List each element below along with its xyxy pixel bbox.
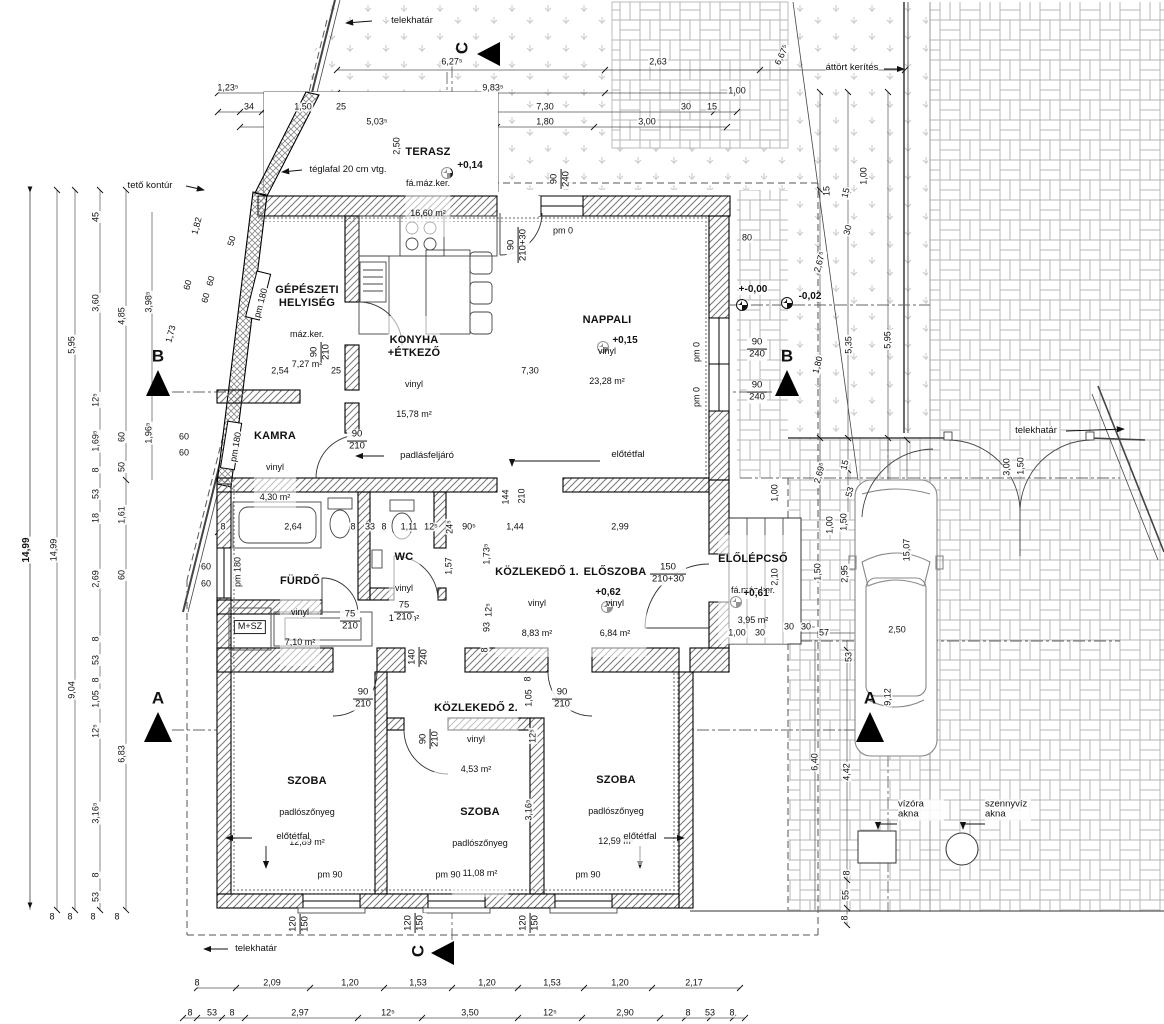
dimension-label: 18 (92, 512, 101, 524)
opening-size-tag: 90210+30 (507, 227, 530, 263)
dimension-label: 5,35 (845, 335, 854, 355)
dimension-label: 8 (193, 979, 200, 988)
dimension-label: 8 (66, 913, 73, 922)
dimension-label: 2,50 (887, 626, 907, 635)
dimension-label: 8 (349, 523, 356, 532)
dimension-label: 8 (92, 466, 101, 473)
opening-size-tag: 120150 (404, 913, 427, 933)
dimension-label: 1,20 (610, 979, 630, 988)
opening-size-tag: 140240 (408, 647, 431, 667)
section-marker-b-right: B (781, 348, 793, 365)
dimension-label: 8 (89, 913, 96, 922)
dimension-label: 12⁵ (92, 723, 101, 739)
dimension-label: 1,96⁵ (145, 421, 154, 444)
room-label-szoba-3: SZOBA padlószőnyeg 12,59 m² (588, 756, 644, 865)
dimension-label: 93 (483, 621, 492, 633)
dimension-label: 6,27⁵ (440, 58, 463, 67)
dimension-label: 1,73⁵ (483, 542, 492, 565)
dimension-label: 3,16⁵ (92, 801, 101, 824)
dimension-label: 1,50 (814, 562, 823, 582)
level-label: -0,02 (799, 292, 822, 302)
dimension-label: 8 (92, 635, 101, 642)
dimension-label: 8 (228, 1009, 235, 1018)
opening-size-tag: 90210 (353, 688, 373, 711)
dimension-label: 5,95 (884, 330, 893, 350)
dimension-label: 12⁵ (485, 602, 494, 618)
dimension-label: pm 0 (552, 227, 574, 236)
dimension-label: 90⁵ (461, 523, 477, 532)
dimension-label: 60 (200, 563, 212, 572)
note-teto-kontur: tető kontúr (128, 181, 173, 191)
dimension-label: 1,44 (505, 523, 525, 532)
opening-size-tag: 90240 (747, 338, 767, 361)
dimension-label: 1,05 (92, 689, 101, 709)
dimension-label: 2,97 (290, 1009, 310, 1018)
dimension-label: 8 (728, 1009, 735, 1018)
dimension-label: 15 (823, 185, 832, 197)
dimension-label: 1,20 (340, 979, 360, 988)
dimension-label: 60 (118, 431, 127, 443)
dimension-label: 1,00 (727, 87, 747, 96)
level-label: +0,14 (457, 161, 482, 171)
dimension-label: 2,50 (393, 136, 402, 156)
dimension-label: 53 (92, 654, 101, 666)
room-label-konyha: KONYHA +ÉTKEZŐ vinyl 15,78 m² (388, 316, 440, 438)
car (849, 480, 943, 756)
dimension-label: pm 90 (434, 871, 461, 880)
dimension-label: 7,30 (520, 367, 540, 376)
dimension-label: 34 (243, 103, 255, 112)
dimension-label: 53 (92, 891, 101, 903)
note-elotetfal-3: előtétfal (611, 450, 644, 460)
dimension-label: 1,00 (826, 515, 835, 535)
dimension-label: 4,42 (843, 762, 852, 782)
dimension-label: 50 (118, 461, 127, 473)
dimension-label: 80 (741, 234, 753, 243)
dimension-label: 1,61 (118, 505, 127, 525)
dimension-label: 3,16⁵ (525, 798, 534, 821)
dimension-label: 60 (200, 580, 212, 589)
dimension-label: 9,12 (884, 687, 893, 707)
dimension-label: 1,00 (727, 629, 747, 638)
room-label-kamra: KAMRA vinyl 4,30 m² (254, 412, 296, 521)
room-label-wc: WC vinyl 1,74 m² (389, 533, 420, 642)
dimension-label: 2,64 (283, 523, 303, 532)
dimension-label: 8 (219, 523, 226, 532)
dimension-label: 12⁵ (423, 523, 439, 532)
dimension-label: 3,98⁵ (145, 290, 154, 313)
dimension-label: 1,50 (1017, 456, 1026, 476)
dimension-label: 2,09 (262, 979, 282, 988)
note-attort-kerites: áttört kerítés (826, 63, 879, 73)
room-label-terasz: TERASZ fá.máz.ker. 16,60 m² (405, 128, 450, 237)
dimension-label: 14,99 (22, 536, 32, 563)
section-marker-b-left: B (152, 348, 164, 365)
section-marker-c-bottom: C (410, 945, 427, 957)
section-marker-c-top: C (454, 42, 471, 54)
dimension-label: 1,53 (408, 979, 428, 988)
dimension-label: 60 (178, 433, 190, 442)
dimension-label: 3,00 (637, 118, 657, 127)
dimension-label: 15 (706, 103, 718, 112)
note-telekhatar-top: telekhatár (391, 16, 433, 26)
dimension-label: 8 (843, 869, 852, 876)
opening-size-tag: 75210 (340, 610, 360, 633)
dimension-label: 1,11 (400, 523, 419, 532)
dimension-label: 2,54 (270, 367, 290, 376)
dimension-label: 55 (842, 889, 851, 901)
section-marker-a-left: A (152, 690, 164, 707)
dimension-label: pm 90 (316, 871, 343, 880)
opening-size-tag: 90210 (419, 729, 442, 749)
dimension-label: pm 90 (574, 871, 601, 880)
dimension-label: 14,99 (50, 538, 59, 563)
dimension-label: 8 (92, 871, 101, 878)
opening-size-tag: 90240 (550, 169, 573, 189)
dimension-label: 1,23⁵ (216, 84, 239, 93)
floor-plan-page: TERASZ fá.máz.ker. 16,60 m² GÉPÉSZETI HE… (0, 0, 1164, 1024)
dimension-label: 30 (680, 103, 692, 112)
opening-size-tag: 90240 (747, 381, 767, 404)
dimension-label: 8 (481, 646, 490, 653)
dimension-label: 2,90 (615, 1009, 635, 1018)
opening-size-tag: 120150 (519, 913, 542, 933)
note-teglafal: téglafal 20 cm vtg. (309, 165, 386, 175)
dimension-label: 210 (518, 487, 527, 504)
dimension-label: 1,53 (542, 979, 562, 988)
dimension-label: 8 (92, 676, 101, 683)
note-vizora-akna: vízóra akna (898, 800, 944, 821)
dimension-label: 3,00 (1003, 457, 1012, 477)
room-label-furdo: FÜRDŐ vinyl 7,10 m² (280, 557, 320, 666)
note-padlasfeljaro: padlásfeljáró (400, 451, 454, 461)
dimension-label: 4,85 (118, 306, 127, 326)
dimension-label: 1,00 (771, 483, 780, 503)
dimension-label: 8 (186, 1009, 193, 1018)
dimension-label: 12⁵ (380, 1009, 396, 1018)
section-marker-a-right: A (864, 690, 876, 707)
dimension-label: 3,50 (460, 1009, 480, 1018)
dimension-label: 45 (92, 211, 101, 223)
dimension-label: 53 (845, 651, 854, 663)
dimension-label: 30 (800, 623, 812, 632)
dimension-label: pm 180 (234, 556, 243, 588)
room-label-kozlekedo2: KÖZLEKEDŐ 2. vinyl 4,53 m² (434, 684, 518, 793)
dimension-label: 5,03⁵ (365, 118, 388, 127)
dimension-label: 12⁵ (92, 392, 101, 408)
room-label-nappali: NAPPALI vinyl 23,28 m² (583, 296, 632, 405)
dimension-label: 9,04 (68, 680, 77, 700)
dimension-label: 53 (704, 1009, 716, 1018)
dimension-label: 6,40 (811, 752, 820, 772)
dimension-label: 12⁵ (542, 1009, 558, 1018)
dimension-label: 1,69⁵ (92, 429, 101, 452)
dimension-label: 1,50 (840, 512, 849, 532)
dimension-label: 8 (113, 913, 120, 922)
note-szennyviz-akna: szennyvíz akna (985, 800, 1031, 821)
dimension-label: 7,30 (535, 103, 555, 112)
dimension-label: 8 (524, 675, 533, 682)
dimension-label: 60 (178, 449, 190, 458)
dimension-label: 2,63 (648, 58, 668, 67)
opening-size-tag: 120150 (289, 914, 312, 934)
dimension-label: 25 (335, 103, 347, 112)
note-elotetfal-1: előtétfal (276, 832, 309, 842)
opening-size-tag: 75210 (394, 601, 414, 624)
dimension-label: 24⁵ (446, 519, 455, 535)
dimension-label: 60 (118, 569, 127, 581)
dimension-label: 2,69 (92, 569, 101, 589)
note-telekhatar-right: telekhatár (1015, 426, 1057, 436)
room-label-szoba-2: SZOBA padlószőnyeg 11,08 m² (452, 788, 508, 897)
dimension-label: 1,00 (860, 166, 869, 186)
opening-size-tag: 90210 (552, 688, 572, 711)
dimension-label: 1,05 (525, 688, 534, 708)
room-label-szoba-1: SZOBA padlószőnyeg 12,89 m² (279, 757, 335, 866)
dimension-label: 1,57 (445, 556, 454, 576)
dimension-label: 57 (818, 629, 830, 638)
note-msz: M+SZ (234, 620, 266, 634)
dimension-label: pm 0 (693, 341, 702, 363)
room-label-eloszoba: ELŐSZOBA vinyl 6,84 m² (584, 548, 647, 657)
dimension-label: 8 (48, 913, 55, 922)
dimension-label: 6,83 (118, 744, 127, 764)
level-label: +0,61 (743, 589, 768, 599)
dimension-label: 8 (380, 523, 387, 532)
opening-size-tag: 150210+30 (650, 563, 686, 586)
dimension-label: pm 0 (693, 386, 702, 408)
dimension-label: 53 (92, 488, 101, 500)
dimension-label: 8 (841, 914, 850, 921)
dimension-label: 1,50 (293, 103, 313, 112)
dimension-label: 3,60 (92, 293, 101, 313)
note-telekhatar-bottom: telekhatár (235, 944, 277, 954)
level-label: +-0,00 (739, 285, 768, 295)
dimension-label: 2,17 (684, 979, 704, 988)
dimension-label: 2,10 (771, 567, 780, 587)
dimension-label: 2,95 (841, 564, 850, 584)
room-label-kozlekedo1: KÖZLEKEDŐ 1. vinyl 8,83 m² (495, 548, 579, 657)
dimension-label: 9,83⁵ (481, 84, 504, 93)
dimension-label: 53 (206, 1009, 218, 1018)
dimension-label: 30 (783, 623, 795, 632)
dimension-label: 33 (364, 523, 376, 532)
dimension-label: 1,80 (535, 118, 555, 127)
dimension-label: 5,95 (68, 335, 77, 355)
dimension-label: 30 (754, 629, 766, 638)
level-label: +0,15 (612, 336, 637, 346)
level-label: +0,62 (595, 588, 620, 598)
dimension-label: 12⁵ (529, 728, 538, 744)
dimension-label: 15,07 (903, 538, 912, 563)
note-elotetfal-2: előtétfal (623, 832, 656, 842)
dimension-label: 144 (502, 488, 511, 505)
dimension-label: 1,20 (477, 979, 497, 988)
opening-size-tag: 90210 (347, 430, 367, 453)
dimension-label: 8 (684, 1009, 691, 1018)
dimension-label: 2,99 (610, 523, 630, 532)
dimension-label: 25 (330, 367, 342, 376)
opening-size-tag: 90210 (310, 342, 333, 362)
